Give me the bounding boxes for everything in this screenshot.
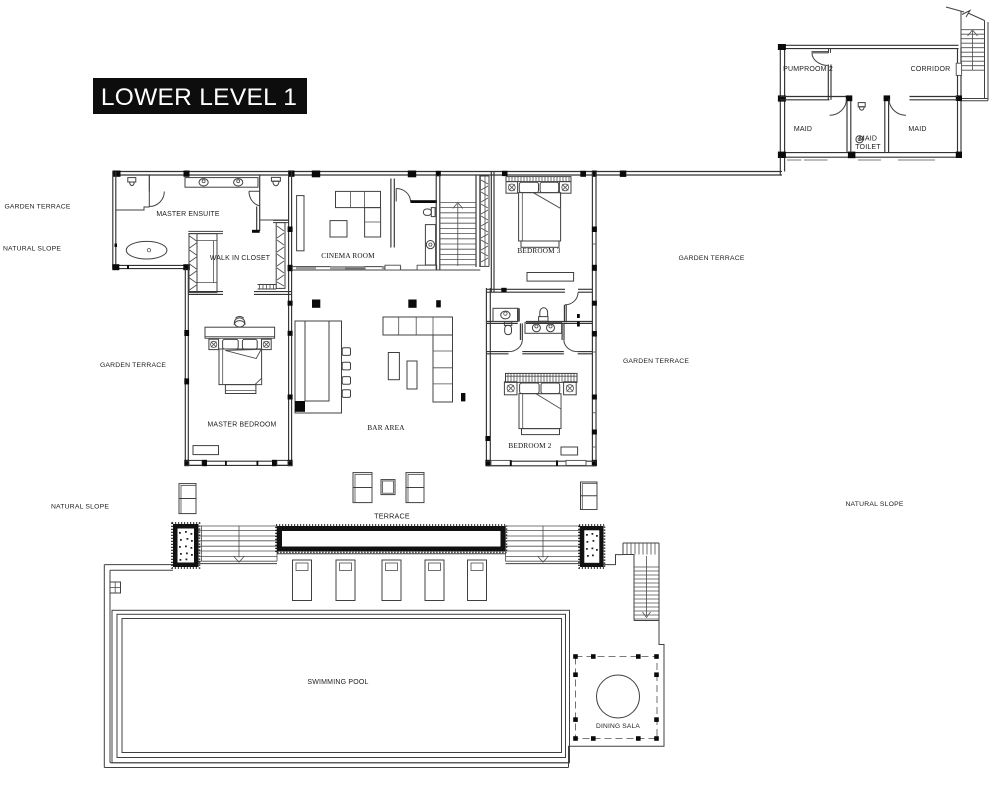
svg-text:WALK IN CLOSET: WALK IN CLOSET [210,255,271,262]
svg-text:MAID: MAID [859,136,877,143]
svg-text:GARDEN TERRACE: GARDEN TERRACE [4,204,70,211]
svg-text:NATURAL SLOPE: NATURAL SLOPE [51,504,109,511]
svg-text:MASTER ENSUITE: MASTER ENSUITE [156,211,219,218]
svg-text:BEDROOM 2: BEDROOM 2 [508,442,551,450]
svg-text:BEDROOM 3: BEDROOM 3 [517,247,560,255]
svg-text:SWIMMING POOL: SWIMMING POOL [307,679,368,686]
svg-text:MASTER BEDROOM: MASTER BEDROOM [207,422,276,429]
svg-text:NATURAL SLOPE: NATURAL SLOPE [845,501,903,508]
svg-text:CINEMA ROOM: CINEMA ROOM [321,252,375,260]
svg-text:MAID: MAID [908,126,926,133]
svg-text:TERRACE: TERRACE [374,512,410,521]
svg-text:CORRIDOR: CORRIDOR [911,66,951,73]
svg-text:NATURAL SLOPE: NATURAL SLOPE [3,246,61,253]
svg-text:GARDEN TERRACE: GARDEN TERRACE [678,255,744,262]
svg-text:LOWER LEVEL 1: LOWER LEVEL 1 [101,84,297,111]
svg-text:BAR AREA: BAR AREA [367,424,405,432]
svg-text:TOILET: TOILET [855,144,881,151]
svg-text:MAID: MAID [794,126,812,133]
svg-text:GARDEN TERRACE: GARDEN TERRACE [100,362,166,369]
svg-text:GARDEN TERRACE: GARDEN TERRACE [623,358,689,365]
svg-text:DINING SALA: DINING SALA [596,723,640,730]
svg-text:PUMPROOM 2: PUMPROOM 2 [783,66,833,73]
